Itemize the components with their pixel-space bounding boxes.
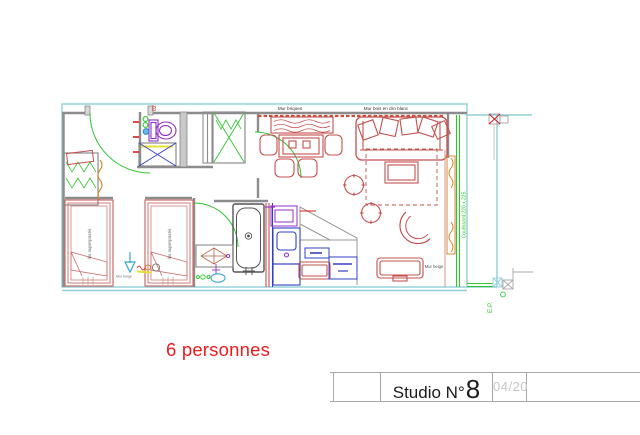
kitchen-sink-unit: [273, 228, 300, 285]
sofa: [356, 117, 450, 160]
studio-number: 8: [466, 376, 480, 402]
bunk-bed-right-label: lits superposés: [167, 228, 172, 259]
dining-chairs: [260, 135, 342, 177]
column-marker-top-icon: [489, 114, 508, 160]
radiator-ticks: [133, 122, 139, 152]
wall-label-beige-bottom: Mur beige: [116, 275, 132, 279]
vanity-sink: [196, 245, 233, 274]
wall-label-bois: Mur bois en clin blanc: [364, 106, 409, 111]
tile-dots: [197, 275, 211, 279]
title-block-divider: [333, 373, 334, 401]
oven-unit: [271, 206, 297, 226]
bunk-bed-right: lits superposés: [145, 200, 193, 286]
side-table-1: [343, 174, 365, 196]
column-marker-bottom-icon: [493, 268, 533, 289]
sliding-door: [457, 115, 460, 287]
kitchen-shelf: [305, 248, 329, 258]
shower-tray: [139, 143, 176, 166]
duct-shaft: [203, 112, 212, 163]
wall-label-beige-right: Mur beige: [425, 264, 444, 269]
buffet-shelf: [271, 117, 333, 133]
floor-plan: Mur briques Mur bois en clin blanc 02: [0, 0, 640, 435]
closet-shaft: [213, 112, 245, 163]
kitchen: [271, 206, 357, 285]
armchair: [400, 212, 430, 244]
wall-label-briques: Mur briques: [278, 106, 303, 111]
kitchen-cabinet: [329, 257, 357, 279]
coffee-table: [385, 162, 418, 183]
door-jambs: [85, 106, 153, 115]
wall-column: [180, 112, 187, 167]
toilet: [149, 120, 176, 141]
fridge: [299, 262, 330, 279]
bidet: [211, 274, 225, 282]
sliding-door-label: Coulissant 220 x 225: [462, 191, 468, 238]
page: Mur briques Mur bois en clin blanc 02: [0, 0, 640, 435]
rainwater-pipe-marker: E.P.: [487, 292, 505, 313]
studio-name-cell: Studio N° 8: [381, 373, 492, 401]
studio-name-label: Studio N°: [393, 383, 465, 403]
curtain: [447, 156, 455, 254]
dining-table: [279, 135, 323, 157]
plumbing-points: [143, 117, 149, 135]
revision-label: 04/20: [493, 373, 526, 401]
stairs-down-arrow-icon: [125, 252, 135, 272]
bathroom-door-arc: [194, 203, 238, 247]
tv-bench: [377, 258, 423, 281]
door-number-label: 02: [152, 105, 158, 111]
rug: [366, 149, 437, 205]
capacity-label: 6 personnes: [166, 339, 270, 361]
title-block: Studio N° 8 04/20: [330, 372, 640, 402]
bathroom: [196, 203, 275, 287]
bunk-bed-left: lits superposés: [65, 200, 113, 286]
rainwater-pipe-label: E.P.: [487, 302, 494, 313]
terrace-edge: [467, 284, 493, 287]
bunk-bed-left-label: lits superposés: [87, 228, 92, 259]
